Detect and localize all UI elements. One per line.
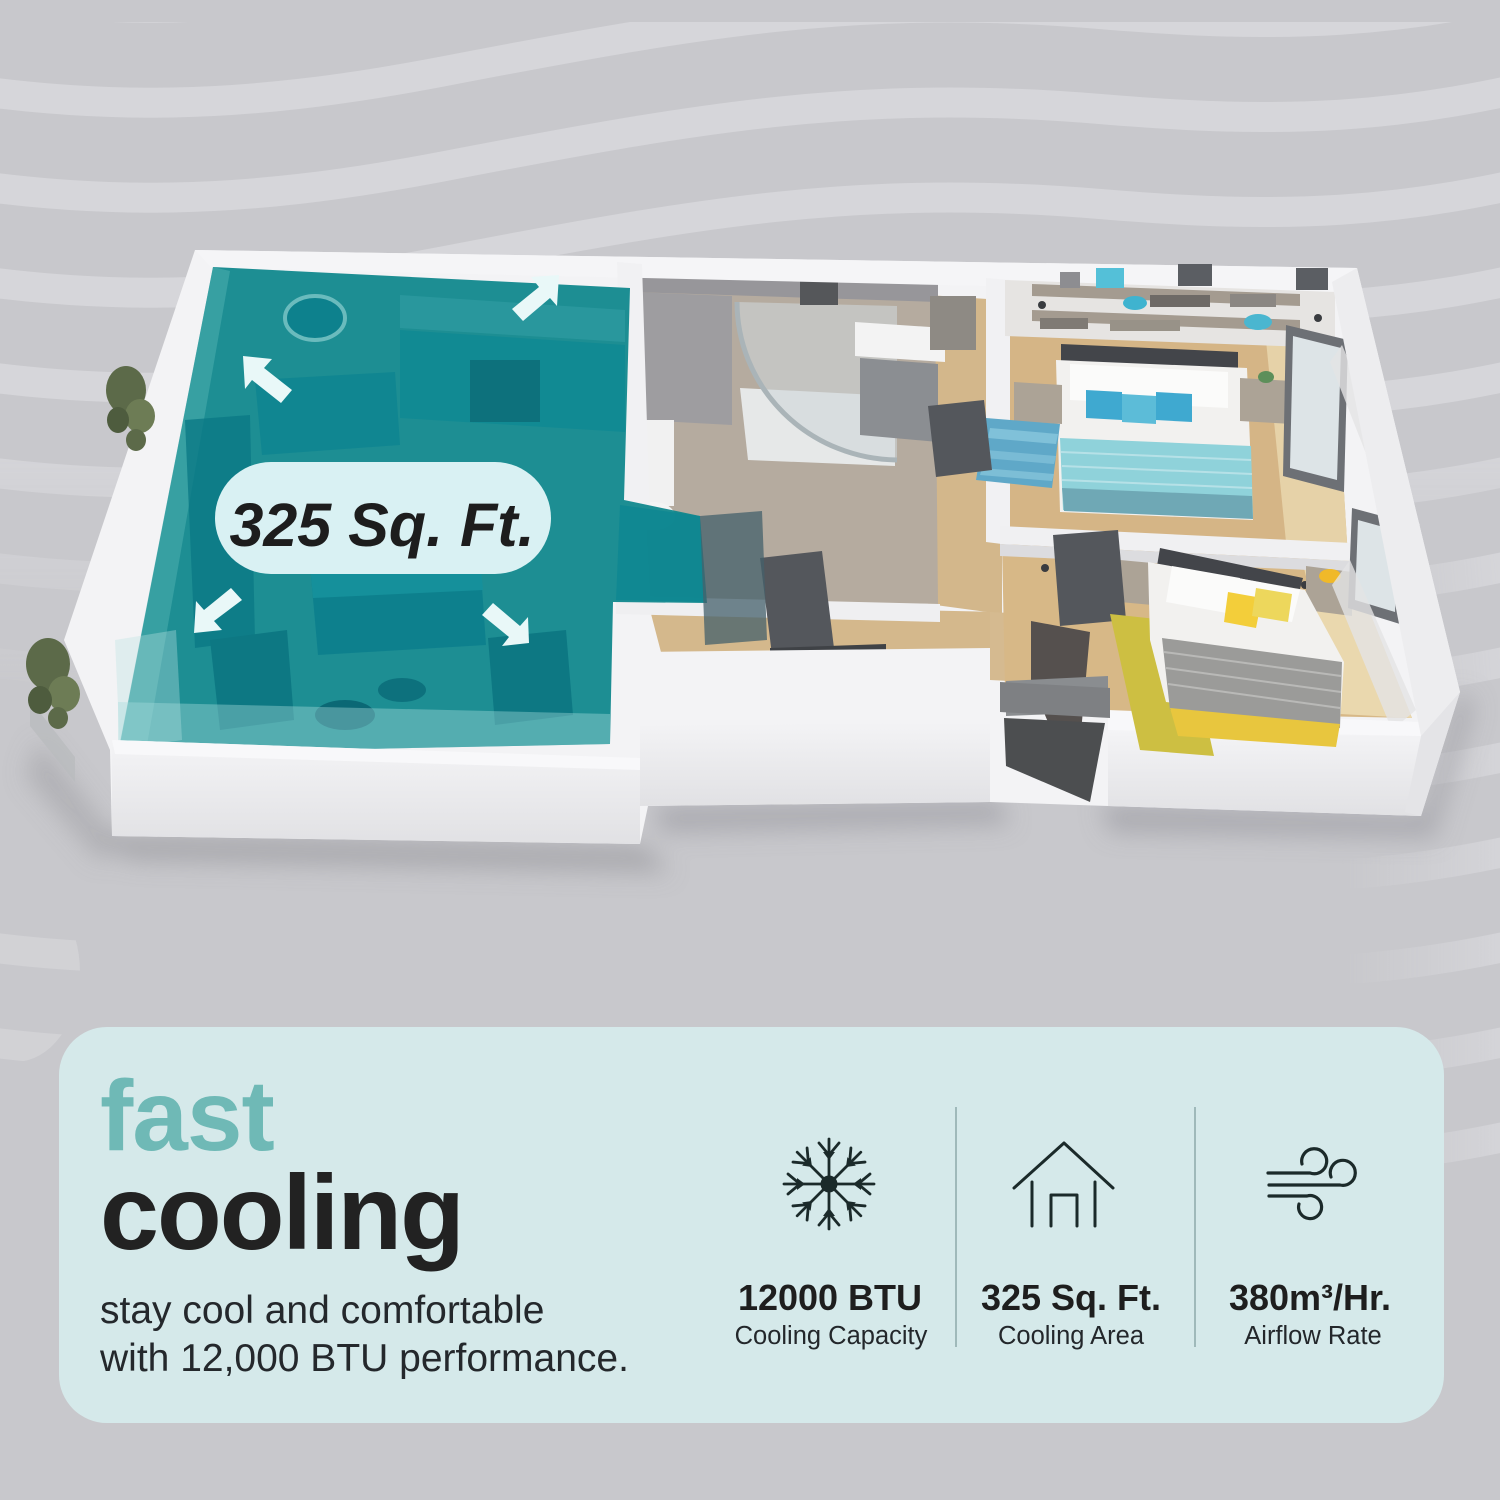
svg-text:325 Sq. Ft.: 325 Sq. Ft. [981,1277,1161,1318]
svg-text:cooling: cooling [100,1154,463,1272]
svg-text:12000 BTU: 12000 BTU [738,1277,922,1318]
svg-text:380m³/Hr.: 380m³/Hr. [1229,1277,1391,1318]
svg-text:stay cool and comfortable: stay cool and comfortable [100,1289,544,1332]
svg-text:Airflow Rate: Airflow Rate [1244,1322,1381,1350]
svg-text:325 Sq. Ft.: 325 Sq. Ft. [229,491,534,559]
svg-text:Cooling Area: Cooling Area [998,1322,1145,1350]
svg-text:with 12,000 BTU performance.: with 12,000 BTU performance. [99,1337,629,1380]
svg-text:Cooling Capacity: Cooling Capacity [735,1322,928,1350]
